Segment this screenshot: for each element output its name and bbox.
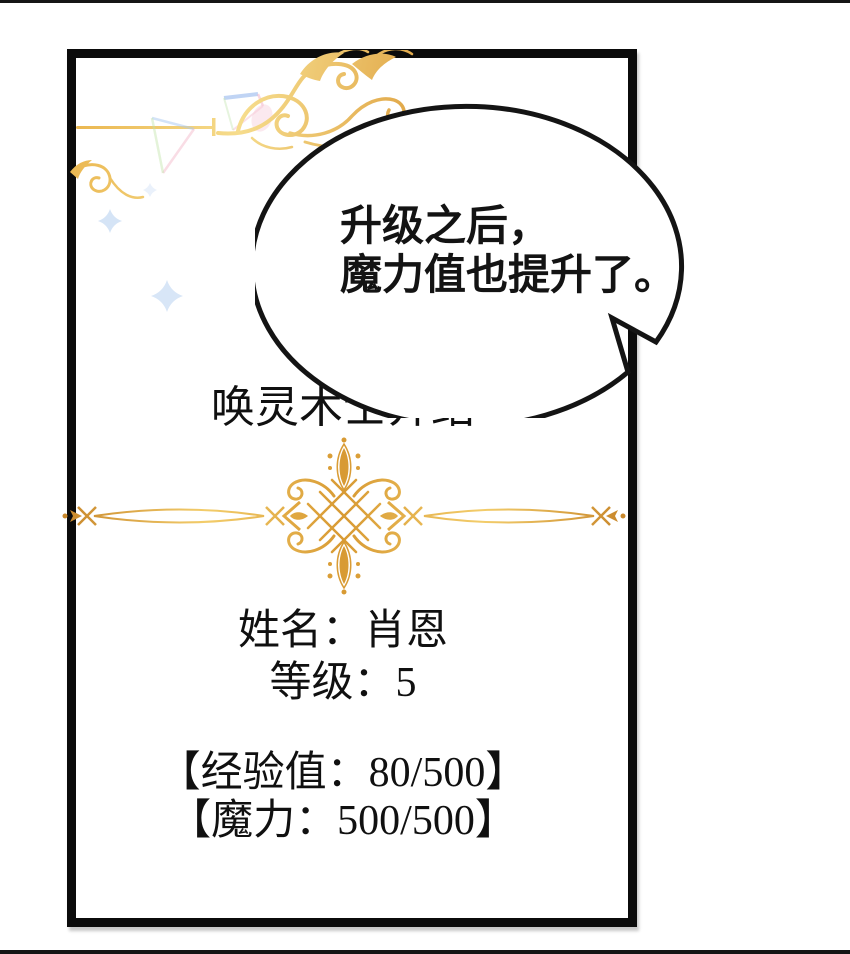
adjacent-panel-edge-bottom xyxy=(0,950,850,954)
stat-mana-line: 【魔力：500/500】 xyxy=(58,796,628,846)
adjacent-panel-edge-top xyxy=(0,0,850,3)
stat-name-line: 姓名：肖恩 xyxy=(58,606,628,656)
comic-page: 唤灵术士介绍 姓名：肖恩 等级：5 【经验值：80/500】 【魔力：500/5… xyxy=(0,0,850,954)
speech-bubble-text: 升级之后， 魔力值也提升了。 xyxy=(340,201,676,299)
stat-level-line: 等级：5 xyxy=(58,658,628,708)
stat-exp-line: 【经验值：80/500】 xyxy=(58,748,628,798)
panel-title: 唤灵术士介绍 xyxy=(58,384,628,432)
speech-line-1: 升级之后， xyxy=(340,201,676,250)
speech-line-2: 魔力值也提升了。 xyxy=(340,250,676,299)
